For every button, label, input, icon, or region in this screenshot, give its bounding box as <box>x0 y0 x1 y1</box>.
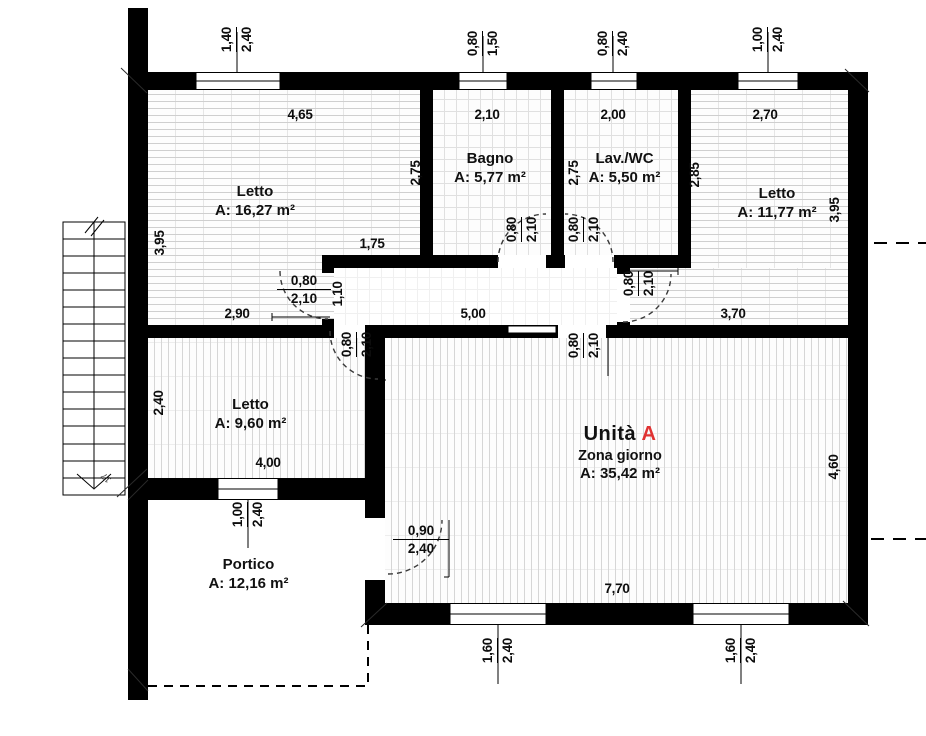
dim-line <box>612 31 613 56</box>
dim-line <box>583 217 584 242</box>
dim-letto2-height: 3,95 <box>826 180 844 240</box>
dim-letto2-width: 2,70 <box>735 107 795 122</box>
door-height: 2,10 <box>524 217 539 242</box>
dim-bagno-height: 2,75 <box>407 143 425 203</box>
window-dim-letto1-top: 1,402,40 <box>219 27 254 52</box>
door-width: 0,80 <box>339 332 354 357</box>
dim-zona-height: 4,60 <box>825 437 843 497</box>
room-area: A: 35,42 m² <box>530 465 710 484</box>
window-height: 2,40 <box>615 31 630 56</box>
window-width: 0,80 <box>595 31 610 56</box>
door-width: 0,80 <box>621 271 636 296</box>
dim-corridor-seg: 1,75 <box>342 236 402 251</box>
dim-line <box>583 333 584 358</box>
door-dim-lavwc: 0,802,10 <box>566 217 601 242</box>
dim-zona-top: 5,00 <box>443 306 503 321</box>
door-dim-portico: 0,90 2,40 <box>393 523 449 556</box>
dim-letto3-width: 4,00 <box>238 455 298 470</box>
dim-lavwc-height: 2,75 <box>565 143 583 203</box>
window-dim-portico: 1,002,40 <box>230 502 265 527</box>
door-width: 0,90 <box>393 523 449 538</box>
portico-open-boundary <box>148 625 368 686</box>
room-name: Portico <box>156 556 341 575</box>
sliding-door-leaf <box>508 326 556 333</box>
room-area: A: 12,16 m² <box>156 575 341 594</box>
dim-letto2-left-height: 2,85 <box>686 145 704 205</box>
dim-zona-bottom: 7,70 <box>587 581 647 596</box>
dim-letto1-bottom: 2,90 <box>207 306 267 321</box>
room-label-bagno: Bagno A: 5,77 m² <box>430 150 550 188</box>
door-height: 2,10 <box>359 332 374 357</box>
dim-line <box>767 27 768 52</box>
dim-line <box>482 31 483 56</box>
window-width: 1,60 <box>480 638 495 663</box>
window-dim-zona-left: 1,602,40 <box>480 638 515 663</box>
window-dim-zona-right: 1,602,40 <box>723 638 758 663</box>
door-width: 0,80 <box>566 217 581 242</box>
window-height: 2,40 <box>743 638 758 663</box>
door-height: 2,10 <box>277 291 331 306</box>
reference-dashed-lines <box>871 243 926 539</box>
door-height: 2,10 <box>586 217 601 242</box>
dim-letto1-height: 3,95 <box>151 213 169 273</box>
window-dim-bagno-top: 0,801,50 <box>465 31 500 56</box>
door-dim-zona: 0,802,10 <box>566 333 601 358</box>
window-dim-letto2-top: 1,002,40 <box>750 27 785 52</box>
dim-letto3-height: 2,40 <box>150 373 168 433</box>
room-area: A: 16,27 m² <box>155 202 355 221</box>
door-height: 2,40 <box>393 541 449 556</box>
dim-line <box>638 271 639 296</box>
dim-line <box>521 217 522 242</box>
room-name: Letto <box>155 183 355 202</box>
window-width: 1,40 <box>219 27 234 52</box>
room-name: Zona giorno <box>530 447 710 465</box>
window-height: 2,40 <box>770 27 785 52</box>
window-width: 1,00 <box>750 27 765 52</box>
window-dim-lavwc-top: 0,802,40 <box>595 31 630 56</box>
door-width: 0,80 <box>566 333 581 358</box>
window-height: 1,50 <box>485 31 500 56</box>
stairs <box>63 217 125 495</box>
floor-plan: Letto A: 16,27 m² Bagno A: 5,77 m² Lav./… <box>0 0 926 736</box>
room-name: Letto <box>158 396 343 415</box>
door-width: 0,80 <box>504 217 519 242</box>
door-width: 0,80 <box>277 273 331 288</box>
window-width: 1,60 <box>723 638 738 663</box>
dim-line <box>356 332 357 357</box>
door-dim-letto3: 0,802,10 <box>339 332 374 357</box>
dim-line <box>497 638 498 663</box>
fraction-line <box>277 289 331 290</box>
room-label-letto1: Letto A: 16,27 m² <box>155 183 355 221</box>
door-height: 2,10 <box>586 333 601 358</box>
room-area: A: 9,60 m² <box>158 415 343 434</box>
dim-lavwc-width: 2,00 <box>583 107 643 122</box>
room-label-portico: Portico A: 12,16 m² <box>156 556 341 594</box>
dim-line <box>247 502 248 527</box>
dim-bagno-width: 2,10 <box>457 107 517 122</box>
window-width: 1,00 <box>230 502 245 527</box>
room-label-letto3: Letto A: 9,60 m² <box>158 396 343 434</box>
window-height: 2,40 <box>250 502 265 527</box>
window-height: 2,40 <box>239 27 254 52</box>
unit-letter: A <box>641 423 656 445</box>
door-dim-letto1: 0,80 2,10 <box>277 273 331 306</box>
fraction-line <box>393 539 449 540</box>
dim-letto1-width: 4,65 <box>270 107 330 122</box>
dim-line <box>236 27 237 52</box>
door-dim-bagno: 0,802,10 <box>504 217 539 242</box>
room-area: A: 5,77 m² <box>430 169 550 188</box>
room-label-zona-giorno: Unità A Zona giorno A: 35,42 m² <box>530 422 710 484</box>
dim-corridor-width: 1,10 <box>329 264 347 324</box>
unit-title: Unità A <box>530 422 710 447</box>
door-dim-letto2: 0,802,10 <box>621 271 656 296</box>
window-width: 0,80 <box>465 31 480 56</box>
dim-letto2-bottom: 3,70 <box>703 306 763 321</box>
window-height: 2,40 <box>500 638 515 663</box>
room-name: Bagno <box>430 150 550 169</box>
unit-word: Unità <box>584 423 637 445</box>
door-height: 2,10 <box>641 271 656 296</box>
dim-line <box>740 638 741 663</box>
